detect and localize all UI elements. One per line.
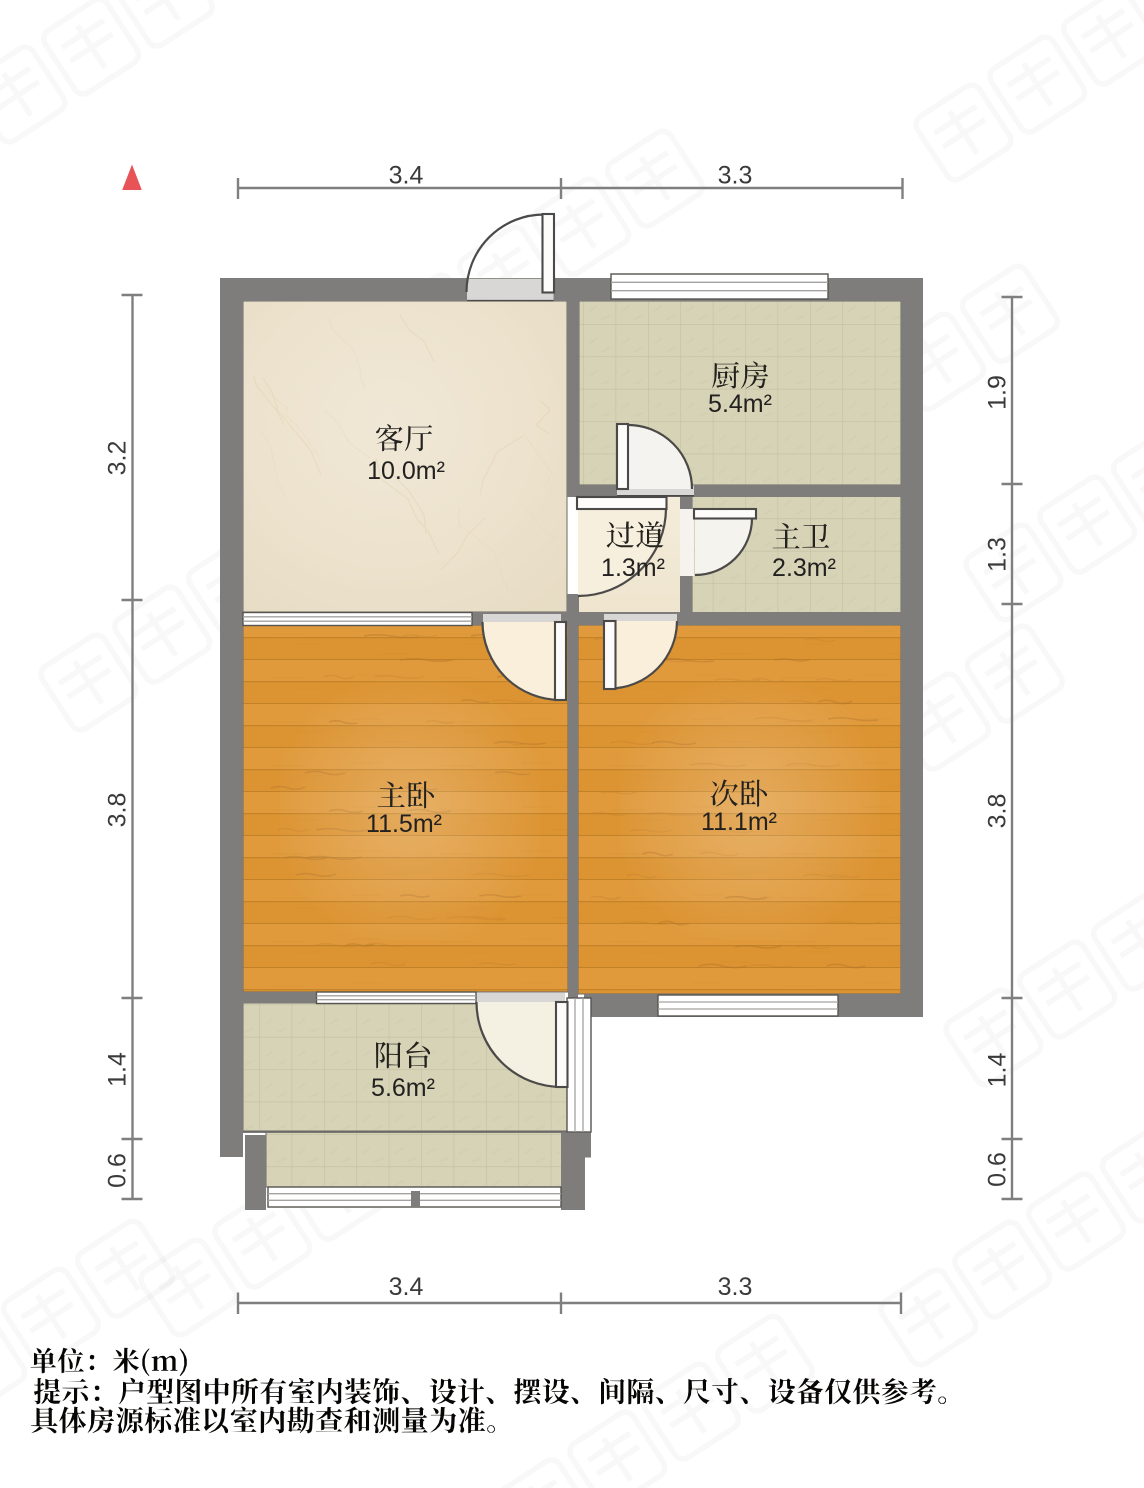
svg-text:5.4m²: 5.4m² — [708, 390, 772, 418]
svg-text:0.6: 0.6 — [984, 1152, 1012, 1187]
svg-text:3.4: 3.4 — [389, 1273, 424, 1301]
svg-text:2.3m²: 2.3m² — [772, 554, 836, 582]
svg-text:3.3: 3.3 — [718, 1273, 753, 1301]
svg-text:3.8: 3.8 — [984, 794, 1012, 829]
svg-text:11.5m²: 11.5m² — [366, 810, 442, 838]
svg-text:11.1m²: 11.1m² — [701, 808, 777, 836]
svg-text:10.0m²: 10.0m² — [367, 457, 445, 485]
svg-text:0.6: 0.6 — [104, 1153, 132, 1188]
svg-text:5.6m²: 5.6m² — [371, 1074, 435, 1102]
svg-text:1.9: 1.9 — [984, 375, 1012, 410]
svg-text:1.4: 1.4 — [104, 1052, 132, 1087]
svg-text:1.3: 1.3 — [984, 537, 1012, 572]
svg-text:1.3m²: 1.3m² — [601, 554, 665, 582]
svg-text:3.3: 3.3 — [718, 162, 753, 190]
svg-text:3.8: 3.8 — [104, 793, 132, 828]
svg-text:1.4: 1.4 — [984, 1053, 1012, 1088]
svg-text:3.2: 3.2 — [104, 441, 132, 476]
svg-text:3.4: 3.4 — [389, 162, 424, 190]
